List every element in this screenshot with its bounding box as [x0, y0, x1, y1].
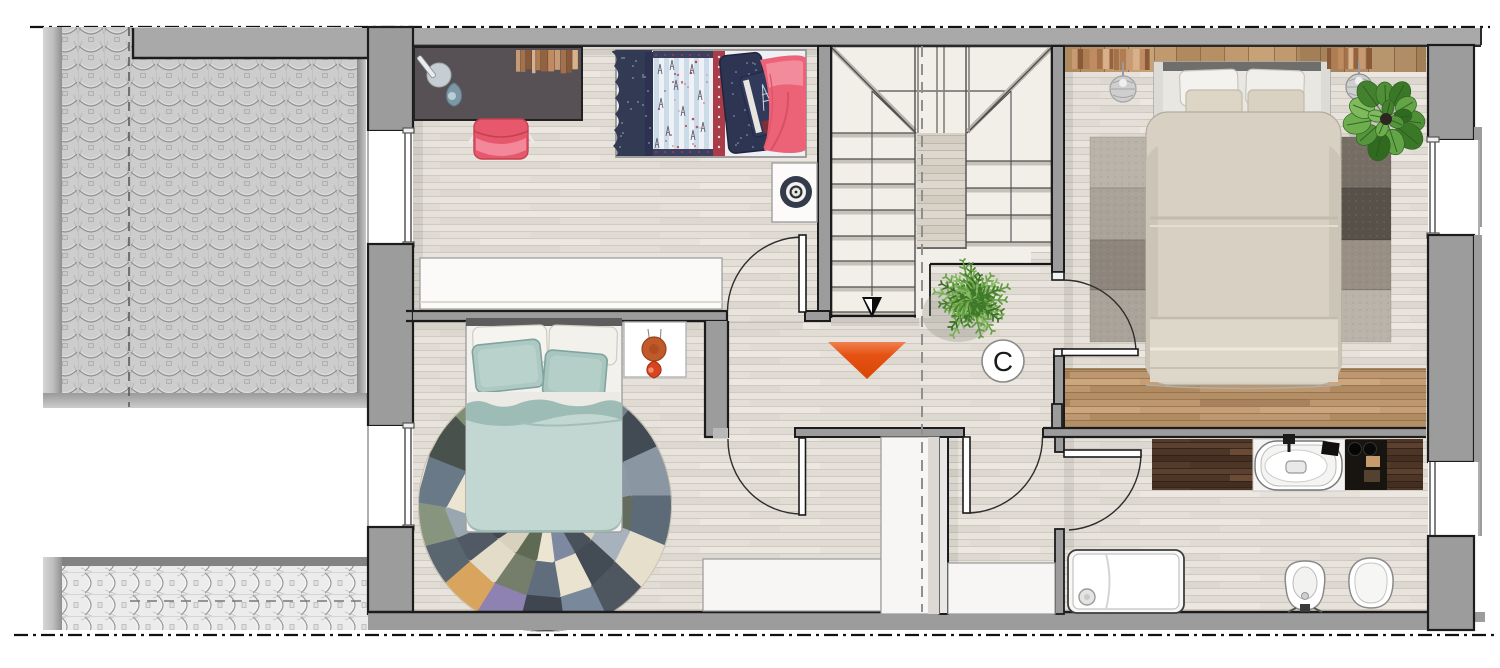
svg-text:C: C	[993, 346, 1013, 377]
